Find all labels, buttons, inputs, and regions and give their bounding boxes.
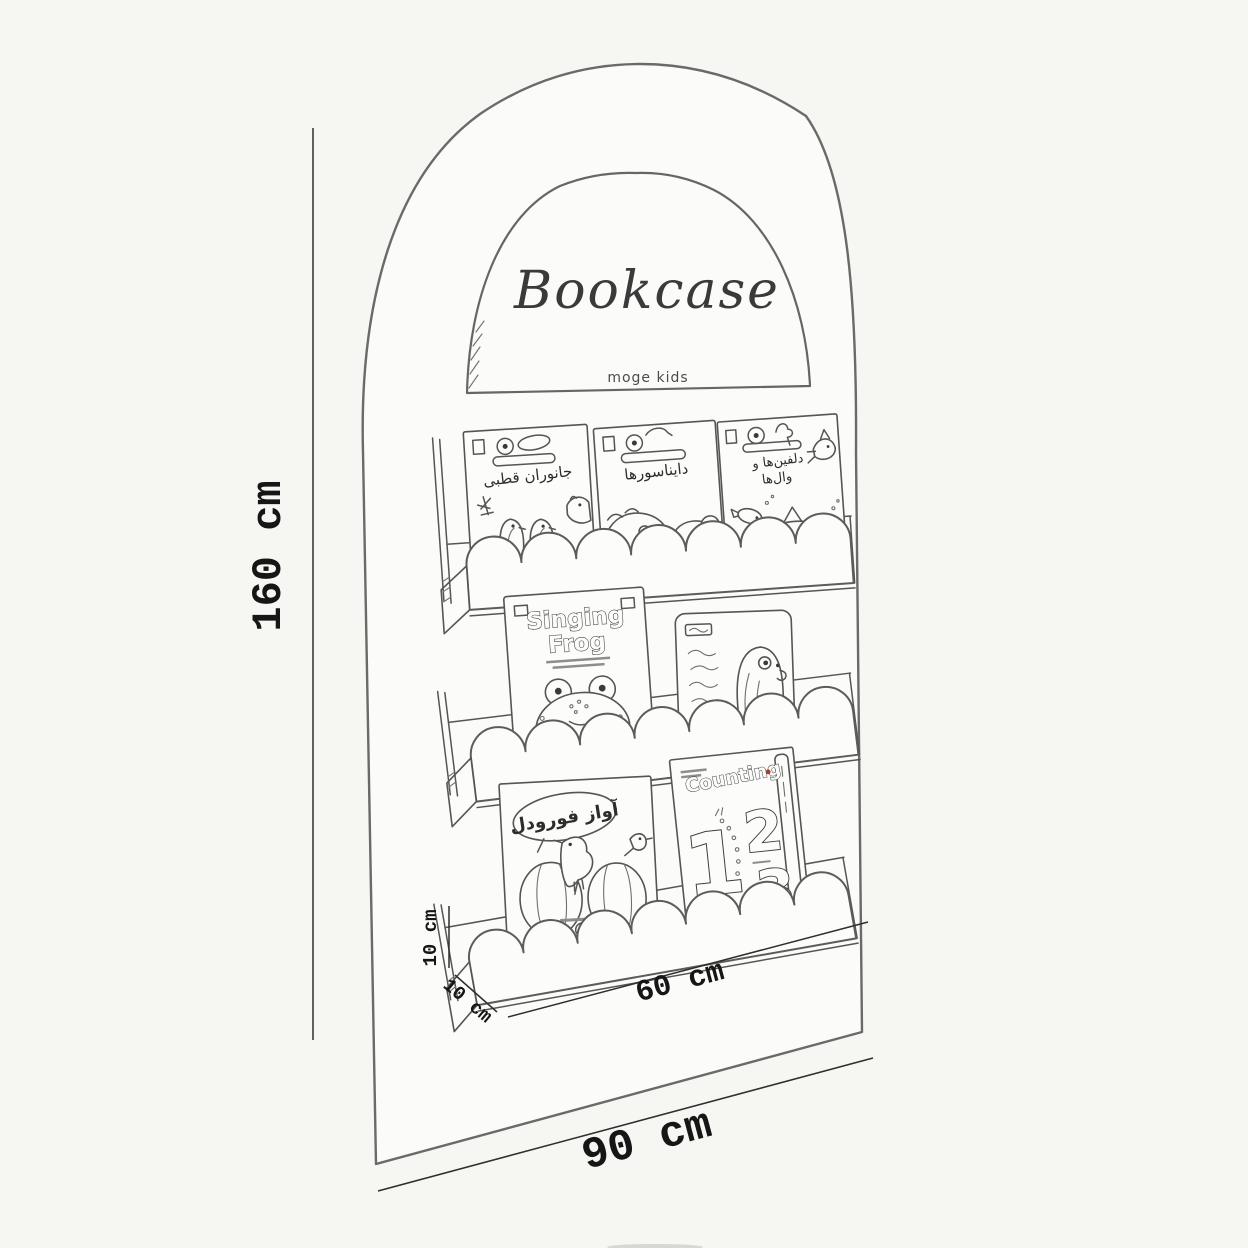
diagram-canvas: Bookcase moge kids جانوران قطبی	[0, 0, 1248, 1248]
width-dimension-label: 90 cm	[577, 1100, 717, 1182]
brand-label: moge kids	[607, 370, 688, 386]
book-title-line2: Frog	[547, 629, 607, 659]
bookcase-script-title: Bookcase	[513, 261, 780, 321]
height-dimension-label: 160 cm	[245, 480, 293, 631]
rail-height-dimension-label: 10 cm	[420, 909, 442, 966]
bookcase-dimension-diagram: Bookcase moge kids جانوران قطبی	[0, 0, 1248, 1248]
number-2: 2	[741, 798, 787, 867]
bottom-edge-smudge	[607, 1244, 703, 1248]
